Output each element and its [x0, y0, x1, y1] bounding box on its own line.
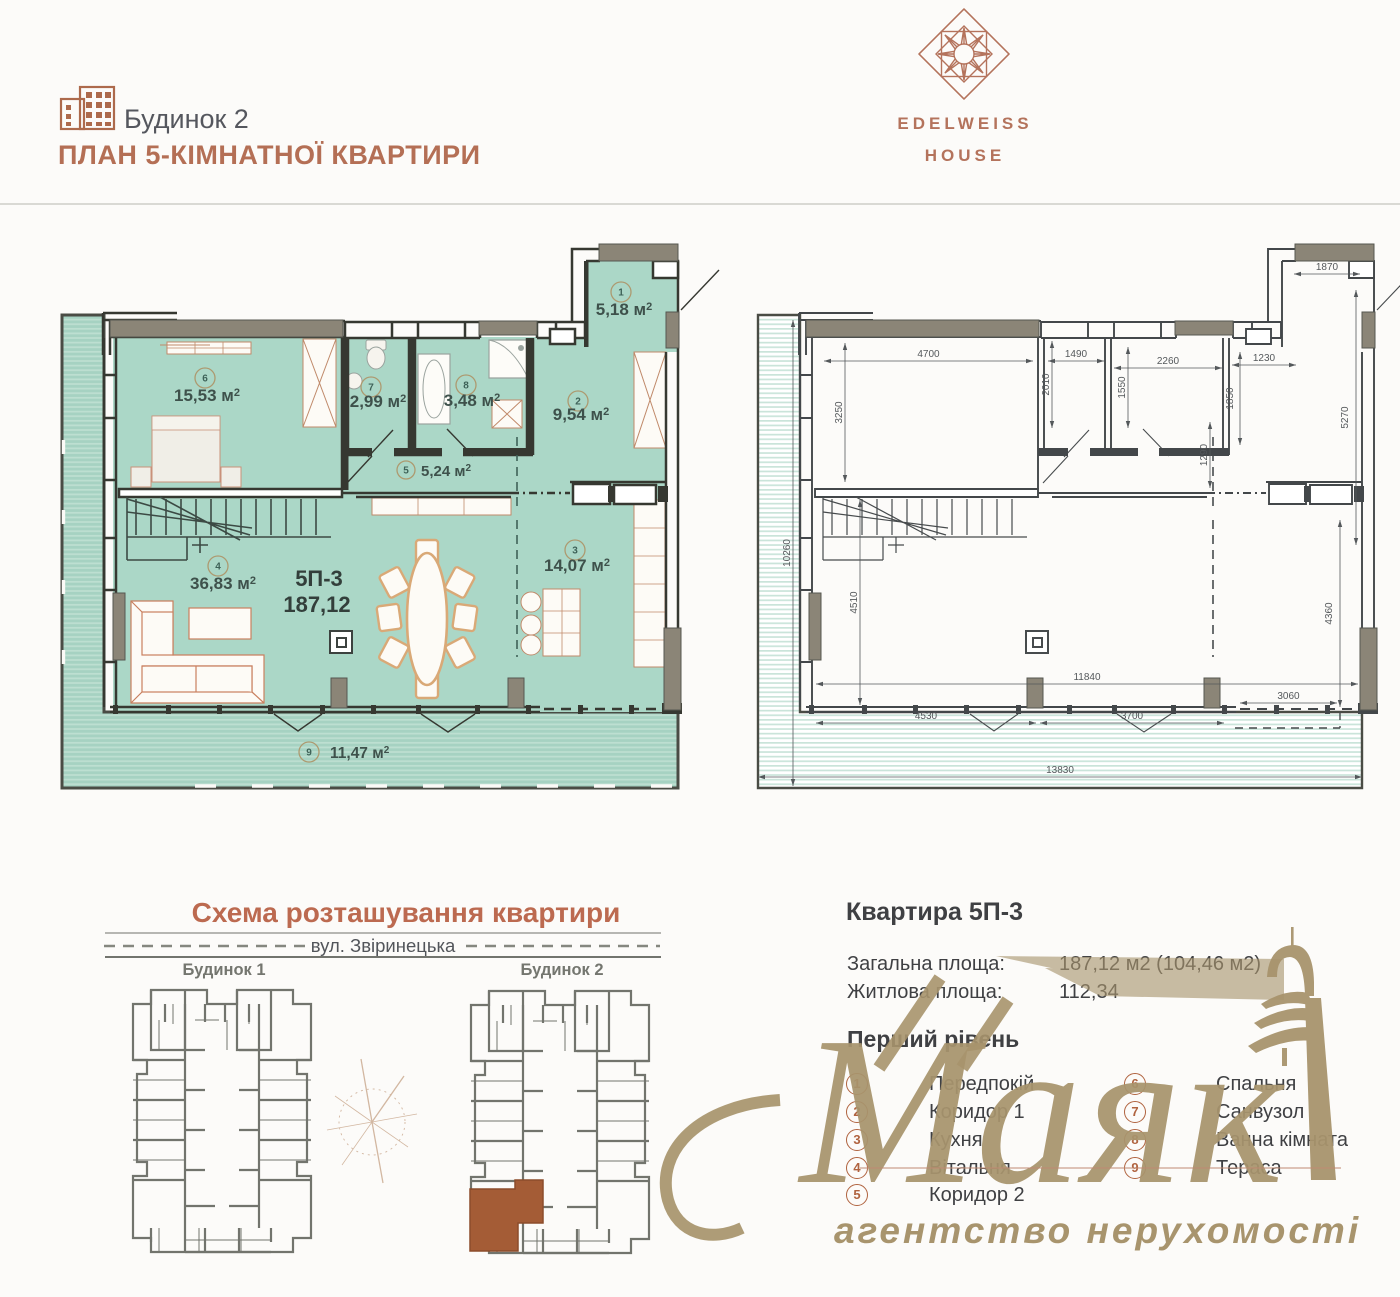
svg-text:Будинок 2: Будинок 2 — [520, 961, 603, 979]
svg-text:4700: 4700 — [917, 349, 940, 360]
svg-text:3,48 м2: 3,48 м2 — [444, 391, 501, 410]
svg-text:36,83 м2: 36,83 м2 — [190, 574, 256, 593]
svg-text:1870: 1870 — [1316, 262, 1339, 273]
svg-text:5: 5 — [403, 466, 409, 477]
svg-text:3: 3 — [572, 546, 578, 557]
svg-text:3060: 3060 — [1277, 691, 1300, 702]
svg-text:4510: 4510 — [849, 591, 860, 614]
svg-text:11,47 м2: 11,47 м2 — [330, 745, 390, 762]
svg-text:Будинок 1: Будинок 1 — [182, 961, 265, 979]
svg-text:4360: 4360 — [1324, 602, 1335, 625]
svg-text:5П-3: 5П-3 — [295, 566, 343, 591]
svg-text:15,53 м2: 15,53 м2 — [174, 386, 240, 405]
svg-text:9: 9 — [306, 748, 312, 759]
svg-text:1490: 1490 — [1065, 349, 1088, 360]
svg-text:агентство нерухомості: агентство нерухомості — [834, 1210, 1361, 1251]
svg-text:9,54 м2: 9,54 м2 — [553, 405, 610, 424]
svg-text:1290: 1290 — [1199, 443, 1210, 466]
svg-text:Маяк: Маяк — [797, 993, 1285, 1228]
svg-text:5,18 м2: 5,18 м2 — [596, 300, 653, 319]
svg-text:1850: 1850 — [1225, 387, 1236, 410]
svg-text:5,24 м2: 5,24 м2 — [421, 463, 471, 480]
svg-text:1: 1 — [618, 288, 624, 299]
svg-text:1230: 1230 — [1253, 353, 1276, 364]
svg-text:1550: 1550 — [1117, 376, 1128, 399]
svg-text:11840: 11840 — [1073, 672, 1101, 683]
svg-text:3250: 3250 — [834, 401, 845, 424]
svg-text:8: 8 — [463, 381, 469, 392]
svg-text:10260: 10260 — [782, 539, 793, 567]
svg-text:2260: 2260 — [1157, 356, 1180, 367]
svg-text:4: 4 — [215, 562, 221, 573]
svg-text:2010: 2010 — [1041, 373, 1052, 396]
svg-text:14,07 м2: 14,07 м2 — [544, 556, 610, 575]
svg-text:13830: 13830 — [1046, 765, 1074, 776]
svg-text:2,99 м2: 2,99 м2 — [350, 392, 407, 411]
svg-text:Схема розташування квартири: Схема розташування квартири — [192, 897, 621, 928]
svg-text:4530: 4530 — [915, 711, 938, 722]
svg-text:187,12: 187,12 — [283, 592, 350, 617]
svg-text:3700: 3700 — [1121, 711, 1144, 722]
svg-text:6: 6 — [202, 374, 208, 385]
svg-text:5270: 5270 — [1340, 406, 1351, 429]
svg-text:вул. Звіринецька: вул. Звіринецька — [311, 935, 456, 956]
